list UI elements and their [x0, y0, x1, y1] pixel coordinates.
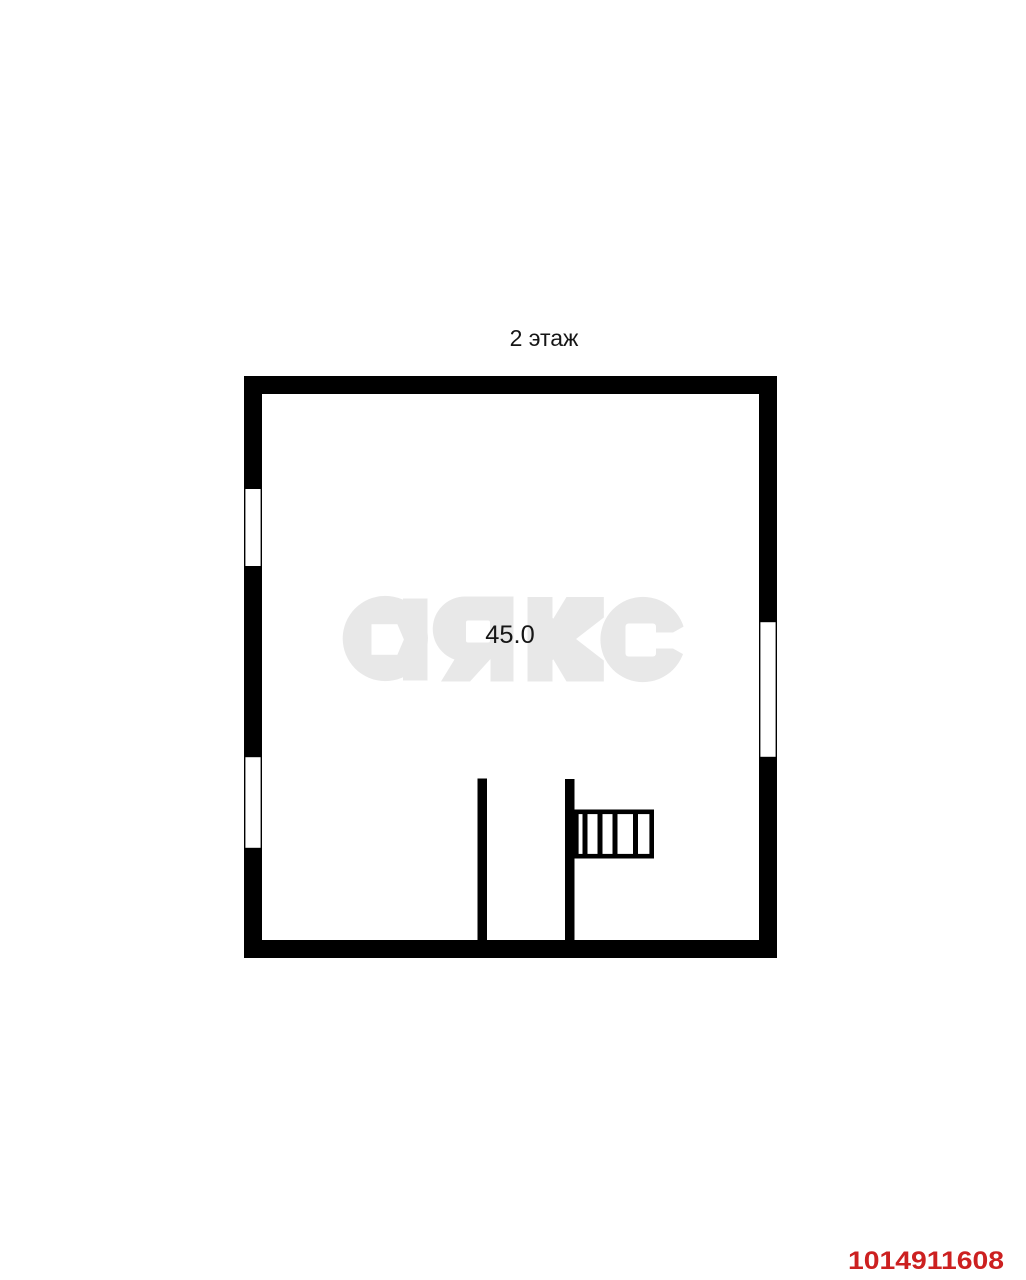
- svg-text:1014911608: 1014911608: [848, 1247, 1004, 1275]
- svg-text:2 этаж: 2 этаж: [510, 325, 579, 351]
- svg-text:45.0: 45.0: [485, 621, 534, 649]
